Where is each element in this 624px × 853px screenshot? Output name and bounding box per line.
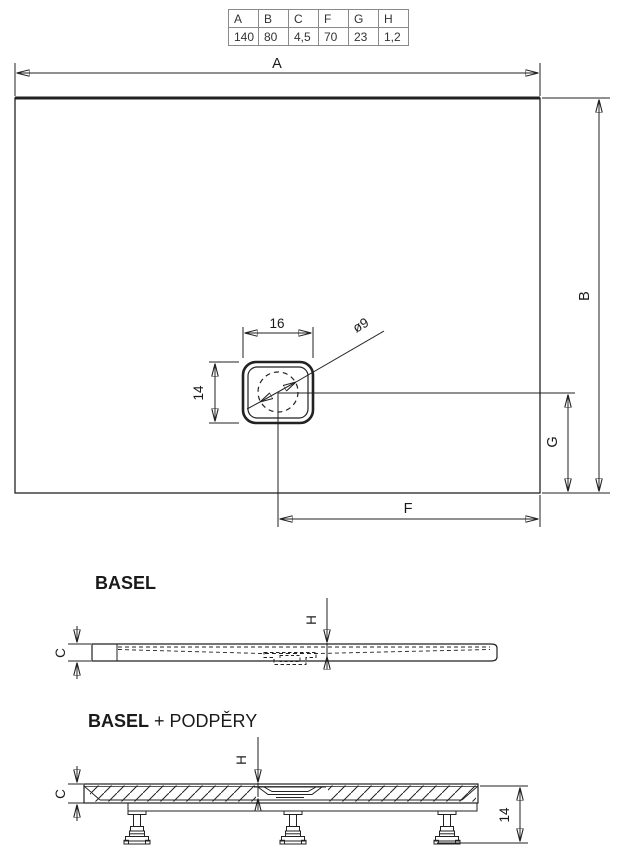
- dim-drain-width: 16: [243, 316, 313, 358]
- dim-drain-diameter-label: ø9: [350, 315, 371, 336]
- dim-drain-width-label: 16: [269, 316, 284, 331]
- support-foot-left: [124, 811, 150, 844]
- support-foot-right: [434, 811, 460, 844]
- support-frame: [124, 803, 477, 844]
- technical-drawing: A B G F: [0, 0, 624, 853]
- dim-f: F: [280, 495, 541, 527]
- podpery-drain-trap: [254, 787, 326, 798]
- basel-tray-profile: [92, 644, 497, 665]
- dim-a-label: A: [272, 56, 282, 72]
- dim-f-label: F: [404, 501, 413, 517]
- dim-b: B: [542, 98, 610, 493]
- podpery-dim-h-label: H: [234, 755, 249, 765]
- dim-drain-depth: 14: [191, 362, 239, 423]
- podpery-title: BASEL + PODPĚRY: [88, 711, 257, 731]
- podpery-dim-c-label: C: [53, 789, 68, 799]
- podpery-dim-14-label: 14: [497, 807, 512, 823]
- podpery-title-bold: BASEL: [88, 711, 149, 731]
- podpery-tray-section: [84, 784, 478, 803]
- side-view-podpery: BASEL + PODPĚRY: [53, 711, 528, 844]
- drain-centerlines: [278, 393, 575, 527]
- dim-g-label: G: [545, 436, 561, 447]
- podpery-title-rest: + PODPĚRY: [149, 711, 257, 731]
- support-foot-middle: [280, 811, 306, 844]
- basel-dim-c: C: [53, 626, 91, 679]
- dim-b-label: B: [577, 291, 593, 301]
- drain-detail: 16 14 ø9: [191, 315, 384, 423]
- side-view-basel: BASEL H: [53, 573, 497, 679]
- basel-dim-h: H: [304, 598, 327, 669]
- drawing-sheet: A B C F G H 140 80 4,5 70 23 1,2: [0, 0, 624, 853]
- dim-g: G: [545, 395, 568, 492]
- basel-title: BASEL: [95, 573, 156, 593]
- dim-drain-depth-label: 14: [191, 385, 206, 401]
- basel-dim-c-label: C: [53, 648, 68, 658]
- basel-dim-h-label: H: [304, 615, 319, 625]
- top-view: A B G F: [15, 56, 610, 527]
- dim-a: A: [15, 56, 540, 96]
- basel-drain-trap: [264, 653, 316, 665]
